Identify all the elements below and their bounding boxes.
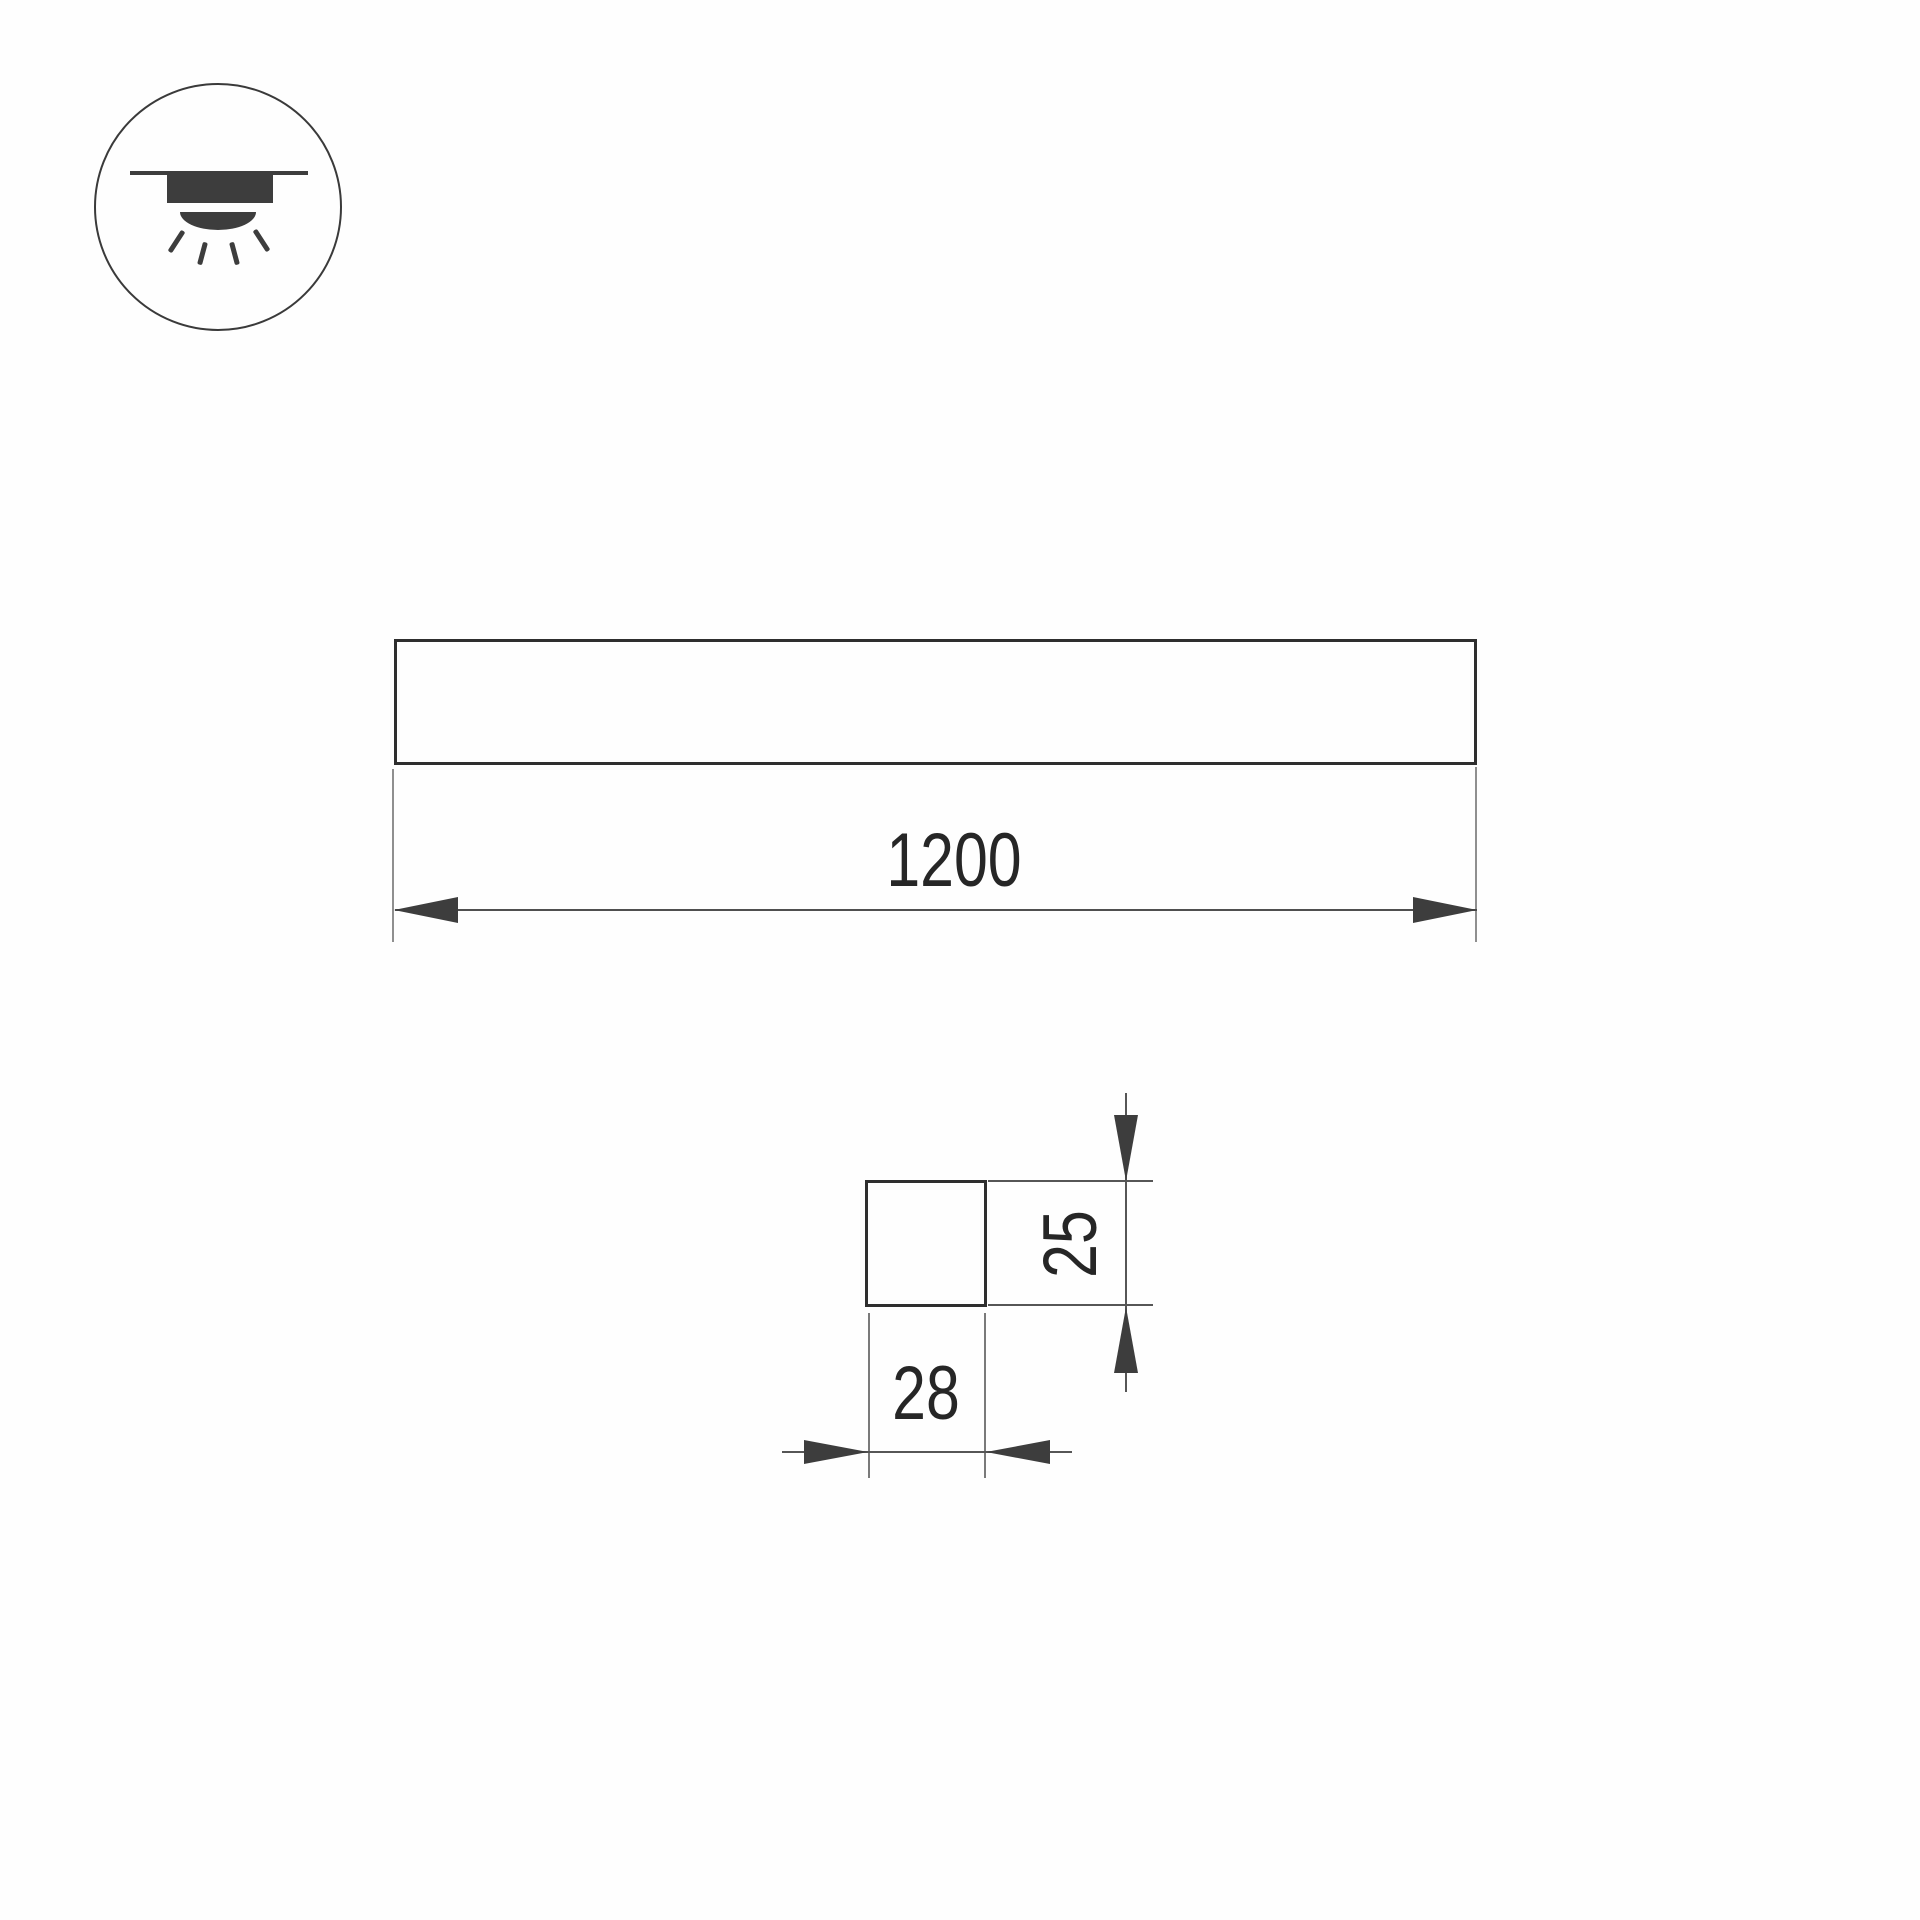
length-dimension-label: 1200 — [874, 823, 1034, 899]
dimension-arrow-right-icon — [1413, 897, 1477, 923]
recessed-downlight-icon — [94, 83, 342, 331]
luminaire-cross-section — [865, 1180, 987, 1307]
width-dimension-label: 28 — [862, 1356, 990, 1432]
dimension-arrow-down-icon — [1114, 1115, 1138, 1181]
luminaire-front-view — [394, 639, 1477, 765]
technical-drawing-canvas: 1200 25 28 — [0, 0, 1920, 1920]
dimension-arrow-left-icon — [394, 897, 458, 923]
length-dimension-line — [395, 909, 1477, 911]
dimension-arrow-right-icon — [804, 1440, 868, 1464]
dimension-arrow-up-icon — [1114, 1307, 1138, 1373]
recessed-housing — [167, 175, 273, 203]
dimension-arrow-left-icon — [986, 1440, 1050, 1464]
height-dimension-label: 25 — [1033, 1180, 1109, 1308]
